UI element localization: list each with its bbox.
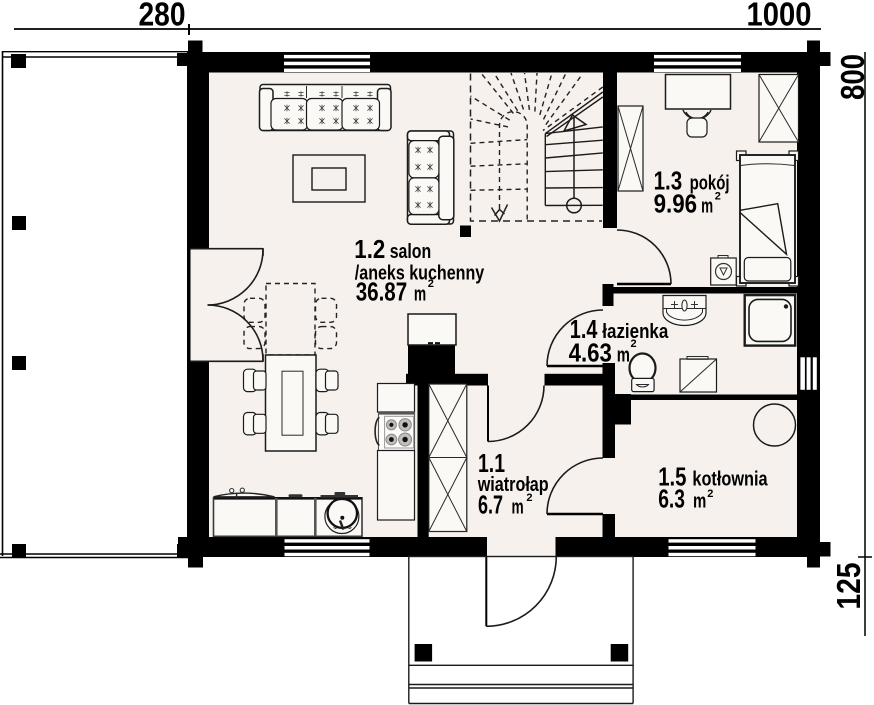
svg-text:4.63: 4.63	[569, 337, 612, 367]
svg-text:m: m	[512, 497, 524, 519]
svg-text:2: 2	[707, 488, 713, 500]
svg-text:m: m	[617, 344, 630, 366]
svg-text:6.7: 6.7	[478, 490, 503, 520]
svg-text:m: m	[701, 196, 713, 218]
svg-text:kotłownia: kotłownia	[692, 468, 768, 490]
svg-text:280: 280	[139, 0, 186, 33]
svg-text:6.3: 6.3	[658, 484, 685, 514]
svg-text:salon: salon	[390, 241, 432, 263]
svg-text:36.87: 36.87	[356, 276, 408, 306]
svg-text:1.2: 1.2	[354, 234, 385, 264]
svg-text:2: 2	[631, 338, 637, 350]
svg-text:2: 2	[526, 492, 532, 504]
svg-text:2: 2	[715, 191, 721, 203]
svg-text:800: 800	[834, 54, 871, 100]
svg-text:9.96: 9.96	[654, 189, 698, 219]
svg-text:1000: 1000	[747, 0, 812, 33]
svg-text:m: m	[693, 491, 706, 513]
svg-text:125: 125	[830, 563, 867, 610]
svg-text:m: m	[414, 283, 426, 305]
svg-text:2: 2	[428, 278, 434, 290]
